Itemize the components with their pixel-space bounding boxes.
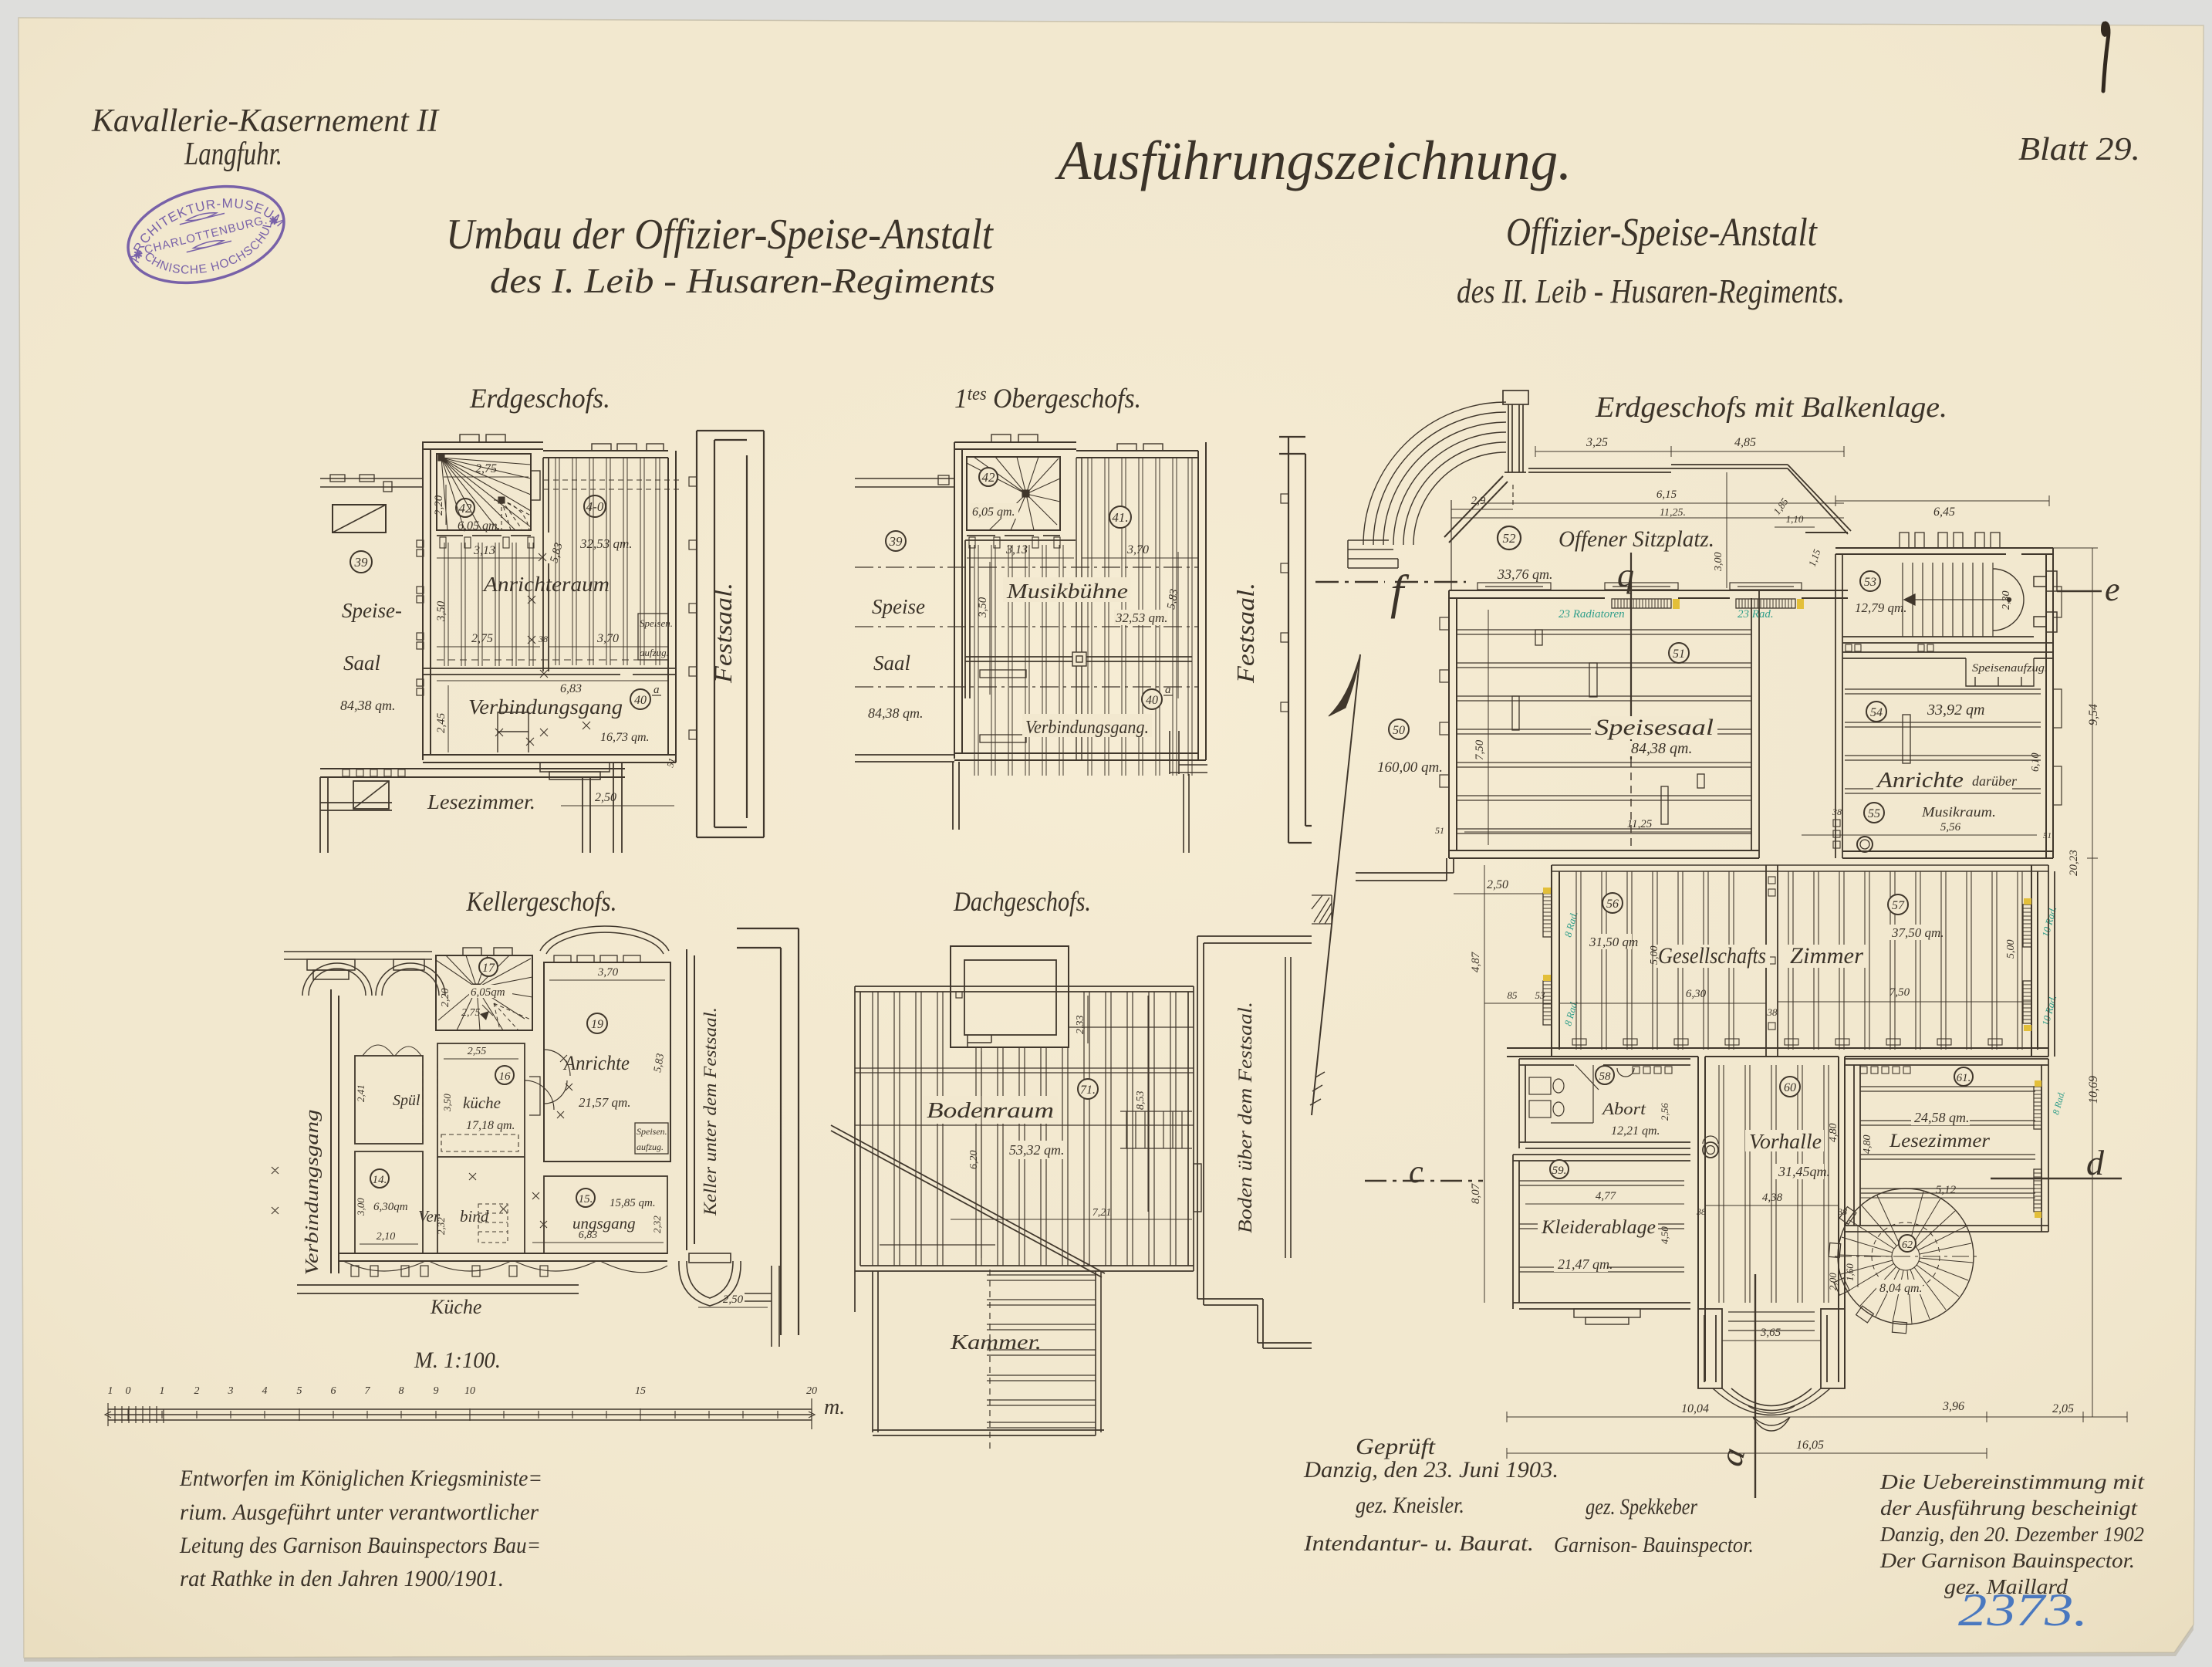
svg-text:16,73 qm.: 16,73 qm. bbox=[600, 731, 650, 744]
svg-text:57: 57 bbox=[1892, 899, 1905, 912]
svg-text:Speisen.: Speisen. bbox=[637, 1126, 667, 1137]
svg-text:38: 38 bbox=[1696, 1206, 1706, 1217]
svg-text:17: 17 bbox=[482, 962, 495, 975]
svg-text:Verbindungsgang: Verbindungsgang bbox=[468, 695, 623, 719]
svg-text:4,38: 4,38 bbox=[1762, 1192, 1783, 1204]
svg-text:6,20: 6,20 bbox=[968, 1151, 980, 1170]
svg-text:4,85: 4,85 bbox=[1734, 436, 1756, 449]
svg-text:6,45: 6,45 bbox=[1933, 506, 1955, 519]
svg-text:5: 5 bbox=[297, 1385, 302, 1397]
svg-text:2,20: 2,20 bbox=[433, 495, 445, 516]
svg-text:2,75: 2,75 bbox=[471, 632, 493, 645]
svg-text:4: 4 bbox=[262, 1385, 268, 1397]
svg-text:59.: 59. bbox=[1552, 1165, 1567, 1177]
svg-text:55: 55 bbox=[1868, 807, 1880, 820]
svg-text:7,50: 7,50 bbox=[1889, 986, 1910, 999]
svg-text:60: 60 bbox=[1784, 1081, 1796, 1094]
svg-text:8,53: 8,53 bbox=[1135, 1091, 1147, 1111]
svg-text:12,79 qm.: 12,79 qm. bbox=[1855, 600, 1907, 615]
svg-text:160,00 qm.: 160,00 qm. bbox=[1377, 759, 1443, 776]
svg-text:40: 40 bbox=[634, 694, 647, 707]
svg-text:3,96: 3,96 bbox=[1942, 1400, 1964, 1413]
svg-text:a: a bbox=[1165, 684, 1171, 696]
svg-text:Festsaal.: Festsaal. bbox=[1231, 583, 1259, 684]
svg-text:2,33: 2,33 bbox=[1075, 1016, 1086, 1035]
svg-text:8,04 qm.: 8,04 qm. bbox=[1879, 1282, 1923, 1295]
svg-text:42: 42 bbox=[982, 470, 996, 485]
svg-text:40: 40 bbox=[1146, 694, 1158, 707]
svg-text:17,18 qm.: 17,18 qm. bbox=[466, 1119, 515, 1132]
svg-text:7: 7 bbox=[365, 1385, 371, 1397]
svg-text:4,80: 4,80 bbox=[1828, 1124, 1839, 1143]
svg-text:23 Radiatoren: 23 Radiatoren bbox=[1559, 608, 1625, 620]
svg-text:c: c bbox=[1409, 1155, 1423, 1190]
svg-text:Blatt 29.: Blatt 29. bbox=[2018, 132, 2140, 167]
svg-text:der Ausführung bescheinigt: der Ausführung bescheinigt bbox=[1880, 1496, 2139, 1520]
svg-text:Boden über dem Festsaal.: Boden über dem Festsaal. bbox=[1235, 1002, 1256, 1233]
svg-text:a: a bbox=[653, 684, 660, 696]
svg-text:Speise-: Speise- bbox=[342, 599, 402, 622]
svg-text:Vorhalle: Vorhalle bbox=[1749, 1130, 1822, 1153]
svg-text:6,10: 6,10 bbox=[2030, 753, 2041, 773]
svg-text:1: 1 bbox=[160, 1385, 165, 1397]
svg-text:39: 39 bbox=[354, 555, 369, 570]
svg-text:Offener Sitzplatz.: Offener Sitzplatz. bbox=[1559, 526, 1714, 552]
svg-text:2,50: 2,50 bbox=[723, 1293, 744, 1306]
svg-text:4-0: 4-0 bbox=[586, 499, 604, 514]
svg-text:6,05qm: 6,05qm bbox=[471, 986, 505, 999]
svg-text:84,38 qm.: 84,38 qm. bbox=[868, 705, 924, 721]
svg-text:61.: 61. bbox=[1957, 1072, 1971, 1084]
svg-text:rat Rathke in den Jahren 1900/: rat Rathke in den Jahren 1900/1901. bbox=[180, 1566, 504, 1591]
svg-text:38: 38 bbox=[1832, 806, 1842, 817]
svg-text:84,38 qm.: 84,38 qm. bbox=[1631, 740, 1692, 757]
svg-text:3,70: 3,70 bbox=[597, 966, 619, 979]
svg-text:2,10: 2,10 bbox=[377, 1231, 396, 1243]
svg-text:2373.: 2373. bbox=[1958, 1584, 2088, 1635]
svg-text:0: 0 bbox=[126, 1385, 131, 1397]
svg-text:Danzig, den 23. Juni 1903.: Danzig, den 23. Juni 1903. bbox=[1303, 1457, 1559, 1483]
svg-text:Saal: Saal bbox=[343, 651, 380, 675]
svg-text:9: 9 bbox=[434, 1385, 439, 1397]
svg-text:19: 19 bbox=[591, 1018, 603, 1031]
svg-text:3,25: 3,25 bbox=[1586, 436, 1608, 449]
svg-text:2,50: 2,50 bbox=[595, 791, 616, 804]
svg-text:7,21: 7,21 bbox=[1092, 1207, 1112, 1219]
svg-text:2,56: 2,56 bbox=[1659, 1103, 1670, 1121]
svg-text:50: 50 bbox=[1393, 724, 1405, 737]
svg-text:M. 1:100.: M. 1:100. bbox=[414, 1347, 501, 1373]
svg-text:2,50: 2,50 bbox=[1487, 878, 1508, 891]
svg-text:24,58 qm.: 24,58 qm. bbox=[1914, 1110, 1970, 1125]
svg-text:23 Rad.: 23 Rad. bbox=[1738, 608, 1774, 620]
svg-text:Abort: Abort bbox=[1601, 1099, 1646, 1118]
svg-text:21,47 qm.: 21,47 qm. bbox=[1558, 1256, 1613, 1272]
svg-text:darüber: darüber bbox=[1972, 773, 2018, 789]
svg-text:Intendantur- u. Baurat.: Intendantur- u. Baurat. bbox=[1303, 1532, 1534, 1556]
svg-text:gez. Kneisler.: gez. Kneisler. bbox=[1356, 1493, 1464, 1518]
svg-text:6,05 qm.: 6,05 qm. bbox=[972, 506, 1015, 519]
svg-text:Zimmer: Zimmer bbox=[1790, 943, 1863, 969]
svg-text:7,50: 7,50 bbox=[1474, 739, 1486, 760]
svg-text:küche: küche bbox=[463, 1094, 501, 1112]
svg-text:1,10: 1,10 bbox=[1786, 513, 1804, 525]
svg-text:21,57 qm.: 21,57 qm. bbox=[579, 1095, 631, 1110]
svg-text:14.: 14. bbox=[373, 1174, 387, 1186]
svg-text:8,07: 8,07 bbox=[1470, 1182, 1482, 1204]
svg-text:Kellergeschofs.: Kellergeschofs. bbox=[466, 886, 617, 917]
svg-text:10,69: 10,69 bbox=[2087, 1076, 2100, 1104]
svg-text:4,77: 4,77 bbox=[1596, 1190, 1617, 1202]
svg-text:6,30qm: 6,30qm bbox=[373, 1201, 408, 1213]
svg-text:2,30: 2,30 bbox=[2001, 591, 2012, 610]
svg-text:Verbindungsgang: Verbindungsgang bbox=[302, 1110, 323, 1276]
svg-text:m.: m. bbox=[824, 1395, 845, 1419]
svg-text:Lesezimmer.: Lesezimmer. bbox=[427, 790, 535, 813]
svg-text:6,83: 6,83 bbox=[560, 682, 582, 695]
svg-text:4,80: 4,80 bbox=[1862, 1135, 1873, 1155]
svg-text:39: 39 bbox=[889, 534, 903, 549]
svg-text:38: 38 bbox=[538, 634, 548, 644]
svg-text:Saal: Saal bbox=[873, 651, 910, 675]
svg-text:71.: 71. bbox=[1080, 1084, 1096, 1097]
svg-text:2,75: 2,75 bbox=[461, 1007, 481, 1019]
svg-text:2,75: 2,75 bbox=[475, 462, 497, 475]
svg-text:Garnison- Bauinspector.: Garnison- Bauinspector. bbox=[1554, 1533, 1754, 1557]
svg-text:5,56: 5,56 bbox=[1940, 821, 1961, 833]
svg-text:Leitung des Garnison Bauinspec: Leitung des Garnison Bauinspectors Bau= bbox=[179, 1533, 541, 1558]
svg-text:16,05: 16,05 bbox=[1796, 1439, 1824, 1452]
svg-text:Erdgeschofs.: Erdgeschofs. bbox=[469, 383, 610, 414]
svg-text:84,38 qm.: 84,38 qm. bbox=[340, 698, 396, 713]
svg-text:3,13: 3,13 bbox=[1005, 543, 1028, 556]
svg-text:Bodenraum: Bodenraum bbox=[927, 1099, 1054, 1123]
svg-text:Kavallerie-Kasernement II: Kavallerie-Kasernement II bbox=[91, 103, 440, 139]
svg-text:2: 2 bbox=[194, 1385, 200, 1397]
svg-text:Ausführungszeichnung.: Ausführungszeichnung. bbox=[1055, 130, 1572, 191]
svg-text:Küche: Küche bbox=[430, 1296, 481, 1318]
svg-text:38: 38 bbox=[1767, 1006, 1778, 1018]
svg-text:Musikbühne: Musikbühne bbox=[1006, 580, 1128, 603]
svg-text:11,25: 11,25 bbox=[1627, 818, 1653, 830]
svg-text:42: 42 bbox=[459, 501, 473, 516]
svg-text:9,54: 9,54 bbox=[2087, 704, 2100, 725]
svg-text:38: 38 bbox=[1837, 1206, 1847, 1217]
svg-text:11,25.: 11,25. bbox=[1660, 507, 1686, 519]
svg-text:2,41: 2,41 bbox=[355, 1084, 366, 1102]
svg-text:Der Garnison Bauinspector.: Der Garnison Bauinspector. bbox=[1879, 1549, 2135, 1572]
svg-text:Gesellschafts: Gesellschafts bbox=[1658, 943, 1766, 969]
svg-text:53: 53 bbox=[1535, 989, 1546, 1001]
svg-text:52: 52 bbox=[1503, 531, 1517, 546]
svg-text:Anrichte: Anrichte bbox=[1876, 769, 1964, 793]
svg-text:53: 53 bbox=[1864, 576, 1876, 589]
svg-text:20,23: 20,23 bbox=[2068, 850, 2080, 876]
svg-text:Lesezimmer: Lesezimmer bbox=[1889, 1131, 1990, 1151]
svg-text:Verbindungsgang.: Verbindungsgang. bbox=[1025, 718, 1149, 738]
svg-text:62: 62 bbox=[1902, 1239, 1913, 1251]
svg-text:51: 51 bbox=[2043, 831, 2052, 840]
svg-text:Dachgeschofs.: Dachgeschofs. bbox=[953, 886, 1091, 917]
svg-text:des I. Leib - Husaren-Regimen: des I. Leib - Husaren-Regiments bbox=[490, 261, 995, 300]
svg-text:Erdgeschofs mit Balkenlage.: Erdgeschofs mit Balkenlage. bbox=[1595, 391, 1947, 424]
svg-text:37,50 qm.: 37,50 qm. bbox=[1891, 925, 1944, 940]
svg-text:33,76 qm.: 33,76 qm. bbox=[1497, 566, 1553, 582]
svg-text:41.: 41. bbox=[1112, 510, 1128, 525]
svg-text:58: 58 bbox=[1599, 1070, 1612, 1083]
svg-text:6,83: 6,83 bbox=[579, 1229, 598, 1241]
svg-text:Danzig, den 20. Dezember 1902: Danzig, den 20. Dezember 1902 bbox=[1879, 1523, 2144, 1546]
svg-text:33,92 qm: 33,92 qm bbox=[1927, 702, 1984, 719]
svg-text:des II. Leib - Husaren-Regime: des II. Leib - Husaren-Regiments. bbox=[1457, 272, 1845, 310]
svg-text:q: q bbox=[1617, 556, 1634, 594]
svg-text:Speise: Speise bbox=[872, 595, 925, 618]
svg-text:54: 54 bbox=[1870, 706, 1883, 719]
svg-text:rium. Ausgeführt unter verant: rium. Ausgeführt unter verantwortlicher bbox=[180, 1500, 539, 1525]
svg-text:8: 8 bbox=[399, 1385, 404, 1397]
svg-text:1,60: 1,60 bbox=[1844, 1263, 1856, 1281]
svg-text:Anrichte: Anrichte bbox=[562, 1052, 630, 1074]
svg-text:2,45: 2,45 bbox=[435, 712, 447, 733]
svg-text:85: 85 bbox=[1508, 989, 1518, 1001]
svg-text:2,05: 2,05 bbox=[2052, 1402, 2074, 1415]
svg-text:Festsaal.: Festsaal. bbox=[709, 583, 737, 684]
svg-text:2,55: 2,55 bbox=[468, 1046, 487, 1057]
svg-text:6,30: 6,30 bbox=[1686, 988, 1707, 1000]
svg-text:15,85 qm.: 15,85 qm. bbox=[610, 1197, 656, 1209]
svg-text:5,00: 5,00 bbox=[1649, 946, 1660, 965]
svg-text:32,53 qm.: 32,53 qm. bbox=[1115, 610, 1168, 625]
svg-text:d: d bbox=[2086, 1143, 2105, 1182]
svg-text:53,32 qm.: 53,32 qm. bbox=[1009, 1142, 1065, 1158]
svg-text:3,00: 3,00 bbox=[1713, 553, 1724, 573]
svg-text:2,32: 2,32 bbox=[651, 1216, 663, 1233]
svg-text:bind: bind bbox=[460, 1207, 489, 1226]
svg-text:e: e bbox=[2105, 570, 2120, 608]
svg-text:3,70: 3,70 bbox=[596, 632, 619, 645]
svg-text:2,20: 2,20 bbox=[440, 989, 451, 1008]
svg-text:10: 10 bbox=[464, 1385, 475, 1397]
svg-text:4,87: 4,87 bbox=[1470, 951, 1482, 972]
svg-text:3: 3 bbox=[228, 1385, 234, 1397]
svg-text:Anrichteraum: Anrichteraum bbox=[482, 573, 610, 596]
svg-text:aufzug.: aufzug. bbox=[640, 647, 669, 658]
svg-text:Umbau der Offizier-Speise-Anst: Umbau der Offizier-Speise-Anstalt bbox=[446, 211, 994, 259]
svg-text:31,50 qm: 31,50 qm bbox=[1589, 935, 1638, 949]
svg-text:Musikraum.: Musikraum. bbox=[1921, 804, 1996, 820]
svg-text:51: 51 bbox=[1435, 825, 1444, 836]
svg-text:5,12: 5,12 bbox=[1936, 1184, 1957, 1196]
svg-text:5,00: 5,00 bbox=[2005, 940, 2017, 959]
svg-text:3,13: 3,13 bbox=[473, 544, 495, 557]
svg-text:Langfuhr.: Langfuhr. bbox=[184, 137, 282, 172]
svg-text:1: 1 bbox=[108, 1385, 113, 1397]
svg-text:3,65: 3,65 bbox=[1760, 1327, 1781, 1339]
svg-text:2,9: 2,9 bbox=[1471, 495, 1486, 507]
svg-text:56: 56 bbox=[1606, 898, 1619, 911]
svg-text:3,50: 3,50 bbox=[435, 600, 447, 622]
svg-text:Kleiderablage: Kleiderablage bbox=[1541, 1217, 1656, 1238]
svg-text:3,50: 3,50 bbox=[977, 597, 989, 618]
svg-text:2,00: 2,00 bbox=[1827, 1273, 1839, 1290]
svg-text:Offizier-Speise-Anstalt: Offizier-Speise-Anstalt bbox=[1506, 211, 1818, 255]
svg-text:Die Uebereinstimmung mit: Die Uebereinstimmung mit bbox=[1879, 1470, 2146, 1493]
svg-text:6: 6 bbox=[331, 1385, 336, 1397]
svg-text:Speisenaufzug.: Speisenaufzug. bbox=[1972, 662, 2048, 675]
svg-text:Spül: Spül bbox=[393, 1092, 420, 1109]
svg-text:Geprüft: Geprüft bbox=[1356, 1434, 1436, 1459]
svg-text:3,50: 3,50 bbox=[441, 1094, 453, 1112]
svg-text:12,21 qm.: 12,21 qm. bbox=[1611, 1124, 1660, 1138]
svg-text:3,70: 3,70 bbox=[1126, 543, 1149, 556]
svg-text:15: 15 bbox=[635, 1385, 646, 1397]
svg-text:20: 20 bbox=[806, 1385, 817, 1397]
svg-text:aufzug.: aufzug. bbox=[637, 1141, 664, 1152]
svg-text:Keller unter dem Festsaal.: Keller unter dem Festsaal. bbox=[701, 1007, 720, 1216]
svg-text:4,50: 4,50 bbox=[1659, 1226, 1670, 1244]
svg-text:15.: 15. bbox=[579, 1193, 593, 1205]
svg-text:16: 16 bbox=[499, 1070, 512, 1083]
svg-text:3,00: 3,00 bbox=[355, 1198, 366, 1216]
svg-text:Speisesaal: Speisesaal bbox=[1595, 715, 1714, 740]
svg-text:32,53 qm.: 32,53 qm. bbox=[579, 536, 633, 551]
svg-text:31,45qm.: 31,45qm. bbox=[1778, 1164, 1830, 1179]
svg-text:gez. Spekkeber: gez. Spekkeber bbox=[1586, 1494, 1697, 1520]
svg-text:6,15: 6,15 bbox=[1656, 489, 1677, 501]
svg-text:51: 51 bbox=[1673, 648, 1685, 661]
svg-text:10,04: 10,04 bbox=[1681, 1402, 1709, 1415]
svg-text:Entworfen im Königlichen Krieg: Entworfen im Königlichen Kriegsministe= bbox=[179, 1466, 542, 1491]
